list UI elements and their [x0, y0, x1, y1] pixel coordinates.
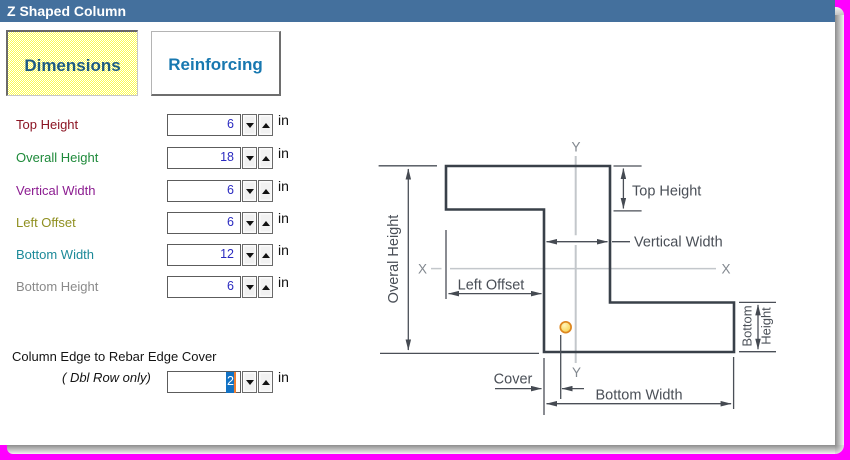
- svg-text:Y: Y: [571, 140, 580, 155]
- svg-text:Overal Height: Overal Height: [386, 215, 402, 304]
- svg-text:Top Height: Top Height: [632, 184, 701, 200]
- svg-text:Left Offset: Left Offset: [458, 278, 525, 294]
- svg-text:Bottom: Bottom: [740, 305, 755, 346]
- svg-text:Height: Height: [759, 307, 774, 345]
- svg-text:Vertical Width: Vertical Width: [634, 235, 723, 251]
- svg-text:Bottom Width: Bottom Width: [595, 388, 682, 404]
- svg-text:Y: Y: [572, 365, 581, 380]
- svg-text:Cover: Cover: [494, 372, 533, 388]
- svg-text:X: X: [418, 261, 427, 276]
- svg-text:X: X: [721, 261, 730, 276]
